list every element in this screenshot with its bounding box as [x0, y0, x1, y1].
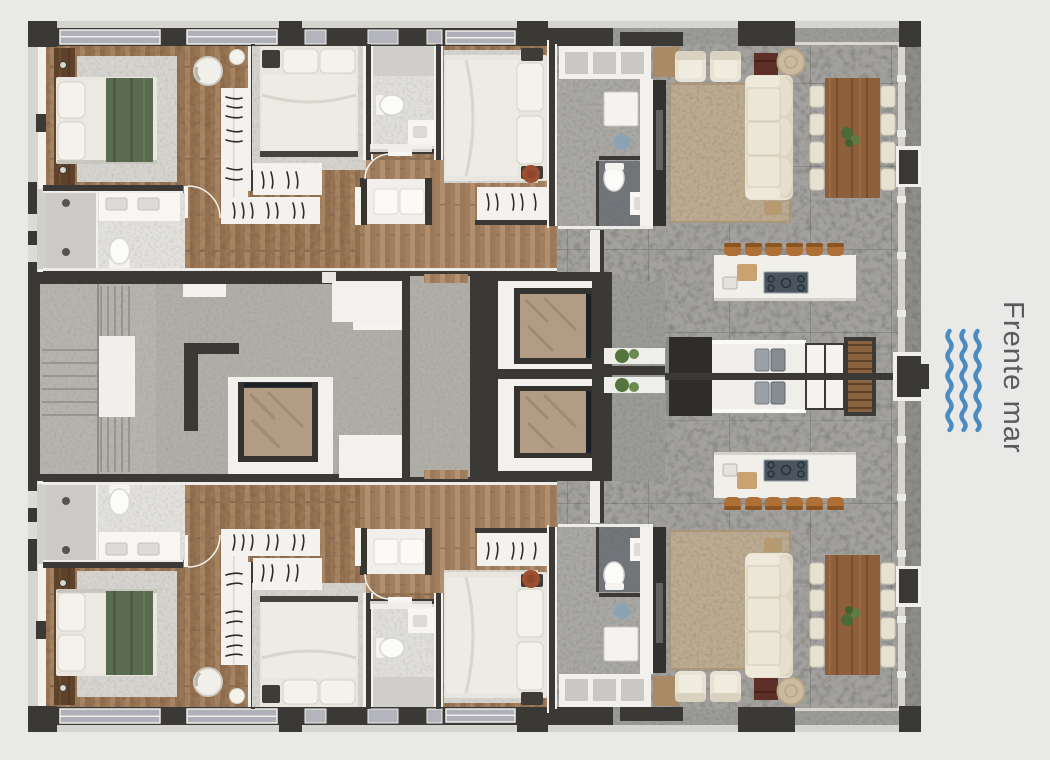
svg-text:Frente mar: Frente mar	[997, 301, 1029, 454]
